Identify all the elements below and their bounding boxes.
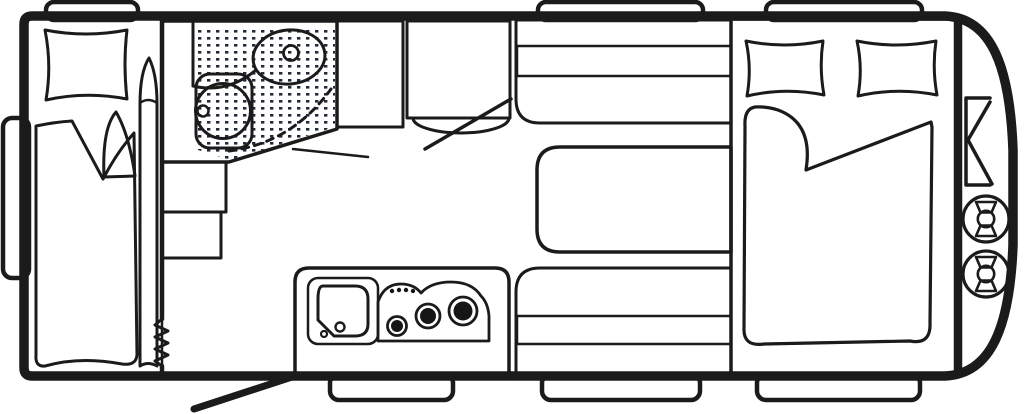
wardrobe-body bbox=[407, 21, 510, 118]
dinette-bench-bottom bbox=[516, 268, 731, 374]
washroom-door-line bbox=[293, 149, 368, 157]
rear-bed-blanket bbox=[36, 121, 137, 366]
snowflake-icon: ❄ bbox=[347, 45, 392, 108]
rear-bedroom bbox=[27, 19, 168, 377]
dinette-table bbox=[537, 147, 731, 252]
kitchen bbox=[295, 268, 509, 378]
wardrobe bbox=[407, 21, 511, 149]
wardrobe-door-arc bbox=[413, 118, 509, 133]
stove-control-knobs bbox=[390, 288, 415, 293]
dinette bbox=[516, 20, 731, 374]
front-bed-pillow-left bbox=[746, 41, 824, 96]
caravan-floorplan: ❄ bbox=[0, 0, 1024, 414]
rear-second-mattress-pillow-line bbox=[140, 100, 157, 103]
sink-tap bbox=[336, 323, 345, 332]
fridge: ❄ bbox=[337, 21, 403, 127]
gas-bottle-1 bbox=[963, 196, 1009, 242]
front-bedroom bbox=[731, 19, 958, 374]
front-bed-platform bbox=[731, 19, 958, 374]
rear-bed-pillow bbox=[45, 30, 127, 100]
floorplan-canvas: ❄ bbox=[0, 0, 1024, 414]
sink-drain bbox=[321, 331, 327, 337]
stove-burners bbox=[388, 297, 478, 336]
entry-door-open-line bbox=[194, 377, 292, 409]
dinette-bench-bottom-backrest bbox=[517, 316, 731, 344]
front-bed-blanket bbox=[744, 107, 932, 345]
cabinet-lower bbox=[162, 212, 221, 258]
gas-bottle-2 bbox=[963, 251, 1009, 297]
hanger-icon bbox=[448, 33, 479, 100]
dinette-bench-top bbox=[516, 20, 731, 123]
front-bed-pillow-right bbox=[857, 41, 937, 96]
caravan-hull-wall bbox=[24, 16, 1013, 376]
rear-second-mattress bbox=[140, 58, 157, 366]
wardrobe-door-swing-line bbox=[425, 99, 511, 149]
dinette-bench-top-backrest bbox=[517, 46, 731, 76]
cabinet-upper bbox=[162, 162, 226, 212]
locker-hatch-chevron bbox=[968, 102, 992, 184]
